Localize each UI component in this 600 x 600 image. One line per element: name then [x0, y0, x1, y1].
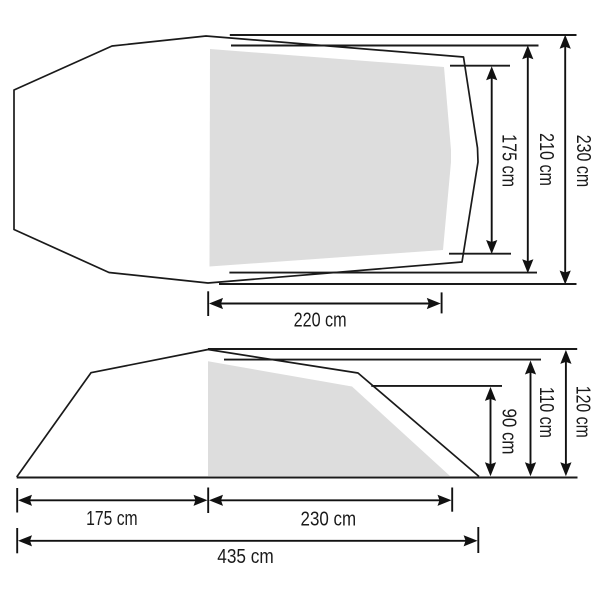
svg-text:435 cm: 435 cm	[217, 546, 274, 568]
svg-text:230 cm: 230 cm	[572, 135, 594, 188]
svg-text:230 cm: 230 cm	[301, 509, 357, 531]
svg-text:210 cm: 210 cm	[535, 133, 557, 186]
svg-text:90 cm: 90 cm	[497, 409, 519, 455]
svg-text:175 cm: 175 cm	[497, 134, 519, 187]
svg-text:120 cm: 120 cm	[572, 386, 594, 438]
svg-text:110 cm: 110 cm	[535, 387, 557, 438]
svg-text:220 cm: 220 cm	[294, 310, 347, 332]
svg-text:175 cm: 175 cm	[86, 508, 138, 530]
